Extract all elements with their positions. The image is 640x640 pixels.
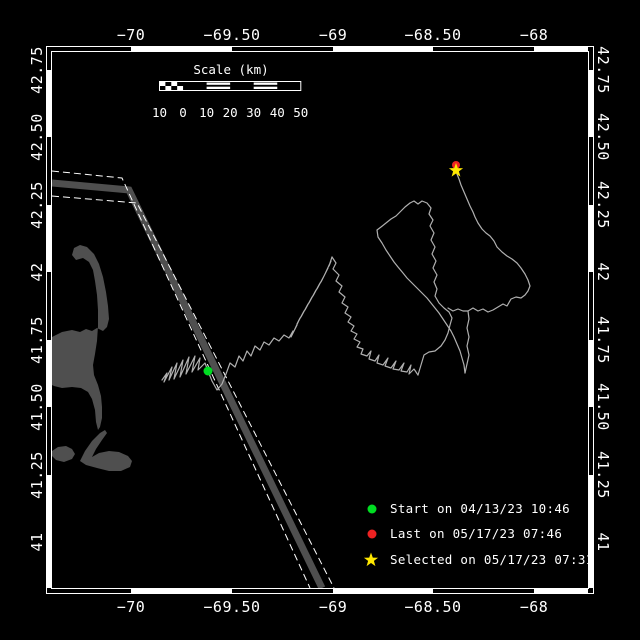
scale-bar-stripe — [207, 83, 231, 85]
landmass-cape-cod — [80, 430, 132, 471]
scale-bar-title: Scale (km) — [193, 62, 268, 77]
glider-track-line — [162, 257, 332, 390]
scale-bar-tick-label: 0 — [179, 105, 187, 120]
legend-row: Selected on 05/17/23 07:31 — [364, 552, 594, 567]
lon-label-bottom: −69.50 — [203, 598, 260, 616]
scale-bar-stripe — [254, 83, 278, 85]
landmass-cape-cod — [52, 245, 109, 430]
lon-label-bottom: −69 — [319, 598, 348, 616]
frame-band-right — [589, 205, 593, 272]
legend-star-icon — [364, 553, 378, 567]
lat-label-right: 42.75 — [594, 46, 612, 94]
frame-band-bottom — [333, 589, 433, 593]
scale-bar-tick-label: 10 — [199, 105, 214, 120]
start-marker — [204, 367, 213, 376]
lon-label-bottom: −68.50 — [404, 598, 461, 616]
legend-row: Start on 04/13/23 10:46 — [368, 501, 571, 516]
legend-label: Selected on 05/17/23 07:31 — [390, 552, 593, 567]
scale-bar-checker-cell — [177, 86, 183, 90]
frame-band-right — [589, 475, 593, 542]
scale-bar-checker-cell — [160, 82, 166, 86]
legend-green-dot-icon — [368, 505, 377, 514]
glider-track-line — [448, 170, 530, 312]
frame-band-bottom — [131, 589, 232, 593]
map-canvas[interactable]: −70−70−69.50−69.50−69−69−68.50−68.50−68−… — [0, 0, 640, 640]
frame-band-left — [47, 205, 51, 272]
scale-bar-tick-label: 30 — [246, 105, 261, 120]
scale-bar-stripe — [207, 87, 231, 89]
lat-label-left: 41.75 — [28, 316, 46, 364]
scale-bar-checker-cell — [165, 86, 171, 90]
track-layer — [162, 170, 530, 390]
lat-label-right: 42.25 — [594, 181, 612, 229]
frame-band-left — [47, 70, 51, 137]
scale-bar-checker-cell — [171, 82, 177, 86]
lat-label-left: 41 — [28, 532, 46, 551]
frame-band-left — [47, 340, 51, 407]
lon-label-top: −69.50 — [203, 26, 260, 44]
lat-label-right: 42.50 — [594, 113, 612, 161]
lat-label-left: 42.75 — [28, 46, 46, 94]
frame-band-right — [589, 340, 593, 407]
lon-label-top: −70 — [117, 26, 146, 44]
lat-label-left: 42.50 — [28, 113, 46, 161]
frame-band-left — [47, 475, 51, 542]
frame-band-top — [333, 47, 433, 51]
lat-label-left: 41.50 — [28, 383, 46, 431]
legend-label: Last on 05/17/23 07:46 — [390, 526, 562, 541]
lat-label-left: 42.25 — [28, 181, 46, 229]
glider-track-line — [465, 311, 469, 373]
lat-label-right: 41.25 — [594, 451, 612, 499]
legend-row: Last on 05/17/23 07:46 — [368, 526, 563, 541]
frame-band-left — [47, 542, 51, 588]
lon-label-top: −68 — [520, 26, 549, 44]
landmass-cape-cod — [52, 446, 75, 462]
glider-track-line — [377, 203, 465, 373]
frame-band-top — [131, 47, 232, 51]
glider-track-map: −70−70−69.50−69.50−69−69−68.50−68.50−68−… — [0, 0, 640, 640]
scale-bar-tick-label: 50 — [293, 105, 308, 120]
lon-label-bottom: −68 — [520, 598, 549, 616]
lon-label-bottom: −70 — [117, 598, 146, 616]
lat-label-left: 42 — [28, 262, 46, 281]
scale-bar-tick-label: 10 — [152, 105, 167, 120]
lon-label-top: −68.50 — [404, 26, 461, 44]
frame-band-top — [534, 47, 588, 51]
lat-label-left: 41.25 — [28, 451, 46, 499]
lat-label-right: 41 — [594, 532, 612, 551]
lat-label-right: 42 — [594, 262, 612, 281]
frame-band-right — [589, 70, 593, 137]
scale-bar-stripe — [254, 87, 278, 89]
legend-label: Start on 04/13/23 10:46 — [390, 501, 570, 516]
legend: Start on 04/13/23 10:46Last on 05/17/23 … — [364, 501, 594, 567]
selected-star-marker — [449, 163, 463, 177]
lon-label-top: −69 — [319, 26, 348, 44]
land-layer — [52, 245, 132, 471]
lat-label-right: 41.75 — [594, 316, 612, 364]
frame-band-bottom — [534, 589, 588, 593]
lat-label-right: 41.50 — [594, 383, 612, 431]
scale-bar: Scale (km)1001020304050 — [152, 62, 308, 120]
scale-bar-tick-label: 20 — [223, 105, 238, 120]
legend-red-dot-icon — [368, 530, 377, 539]
scale-bar-tick-label: 40 — [270, 105, 285, 120]
